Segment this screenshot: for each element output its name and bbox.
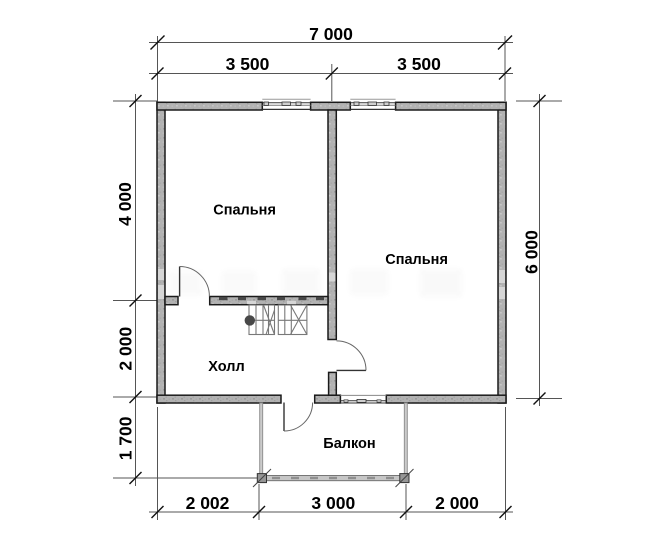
svg-text:3 500: 3 500 [397,54,441,74]
svg-text:7 000: 7 000 [309,24,353,44]
svg-text:2 000: 2 000 [116,327,136,371]
svg-text:3 000: 3 000 [311,493,355,513]
svg-text:Холл: Холл [208,359,244,375]
svg-text:6 000: 6 000 [522,230,542,274]
svg-text:Балкон: Балкон [323,436,375,452]
svg-text:1 700: 1 700 [116,416,136,460]
svg-text:Спальня: Спальня [213,203,276,219]
svg-text:2 000: 2 000 [435,493,479,513]
svg-text:4 000: 4 000 [115,182,135,226]
svg-text:2 002: 2 002 [186,493,230,513]
svg-text:Спальня: Спальня [385,252,448,268]
svg-text:3 500: 3 500 [226,54,270,74]
